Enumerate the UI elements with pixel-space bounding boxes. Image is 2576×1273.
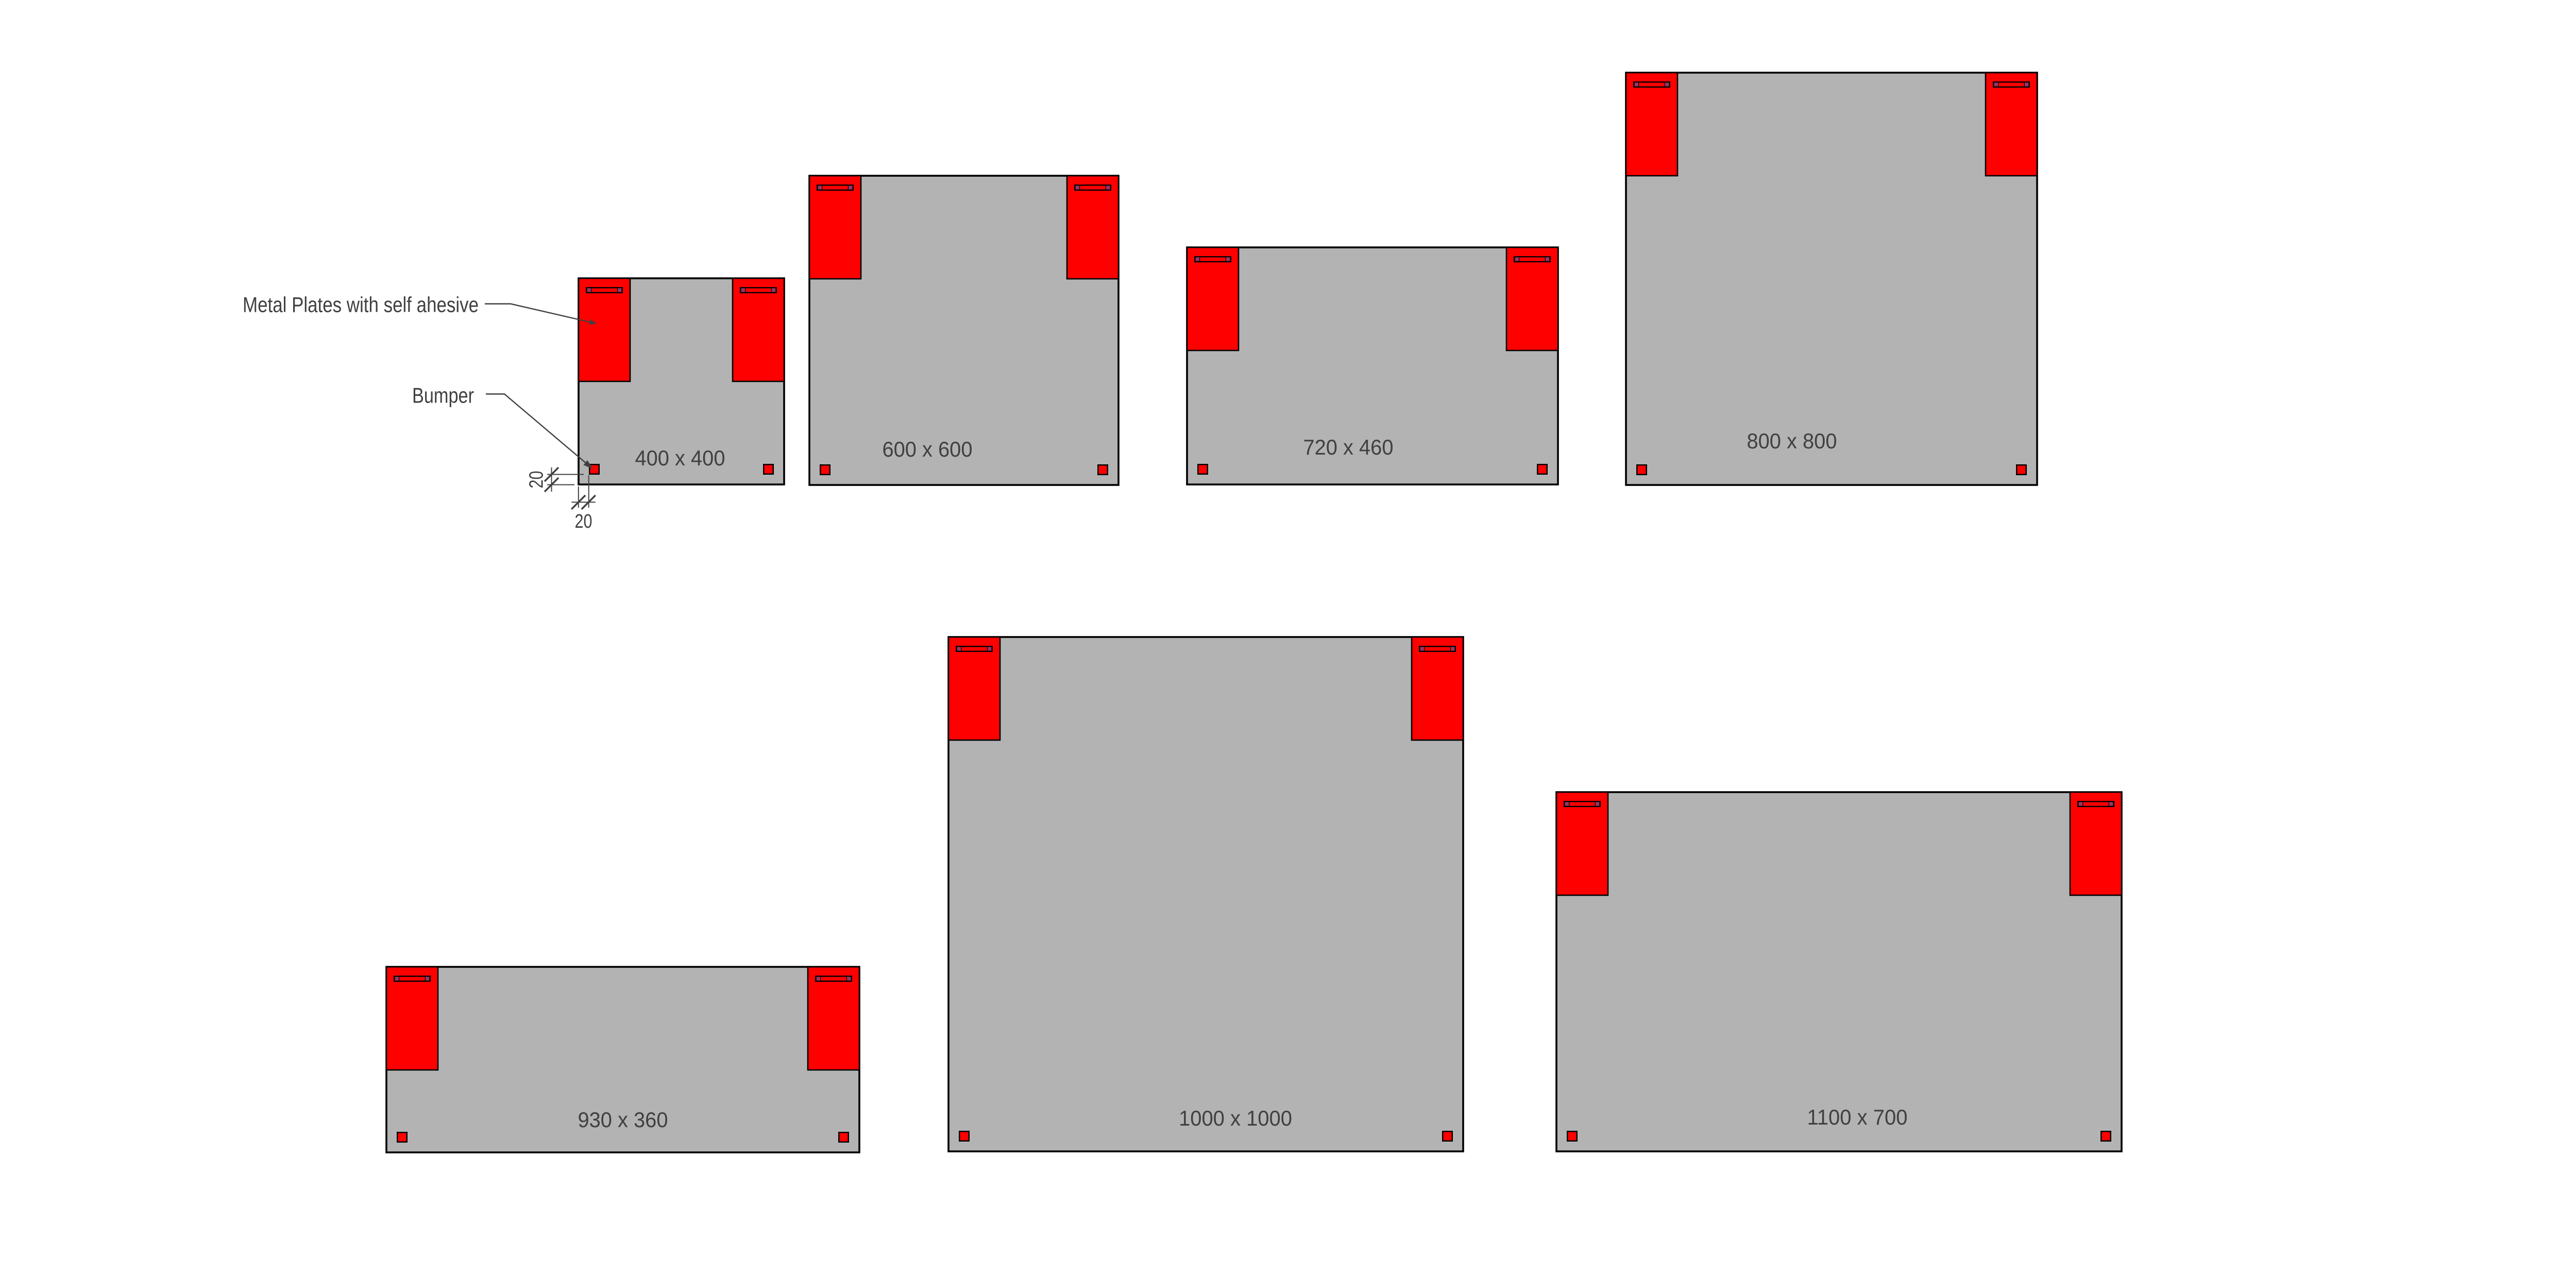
svg-text:1000 x 1000: 1000 x 1000 [1179,1106,1292,1130]
svg-text:800 x 800: 800 x 800 [1747,429,1837,453]
svg-text:930 x 360: 930 x 360 [578,1108,668,1132]
svg-text:Bumper: Bumper [412,383,474,408]
svg-text:20: 20 [526,471,548,489]
svg-text:20: 20 [575,511,592,532]
svg-text:720 x 460: 720 x 460 [1303,435,1394,459]
svg-text:Metal Plates with self ahesive: Metal Plates with self ahesive [243,293,479,317]
svg-text:600 x 600: 600 x 600 [883,437,973,461]
svg-text:1100 x 700: 1100 x 700 [1807,1105,1908,1129]
svg-text:400 x 400: 400 x 400 [635,446,725,470]
